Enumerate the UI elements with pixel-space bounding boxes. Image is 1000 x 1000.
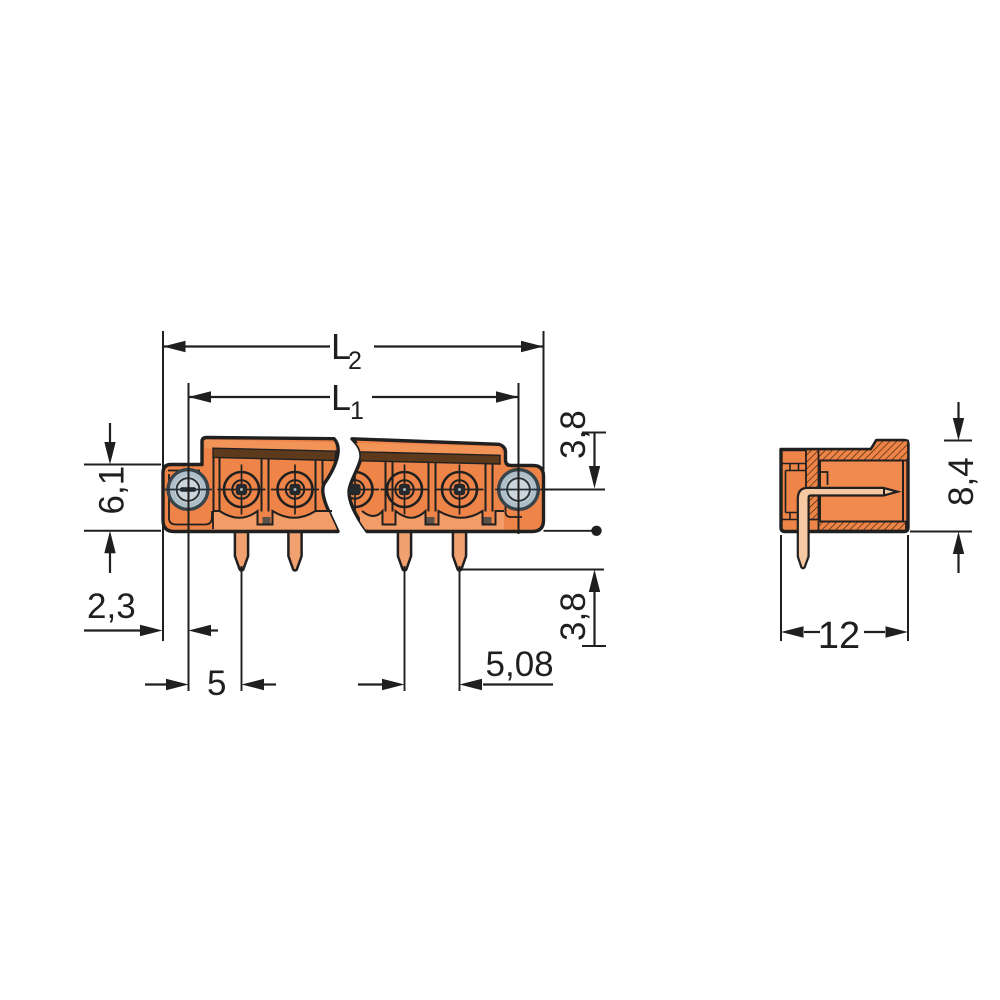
svg-text:1: 1 [350, 397, 364, 425]
svg-text:12: 12 [818, 615, 860, 657]
svg-text:L: L [331, 377, 351, 418]
svg-text:3,8: 3,8 [554, 592, 593, 641]
svg-text:6,1: 6,1 [93, 466, 132, 515]
svg-text:8,4: 8,4 [942, 457, 981, 506]
svg-text:2: 2 [348, 347, 362, 375]
svg-text:5,08: 5,08 [486, 645, 554, 684]
svg-text:5: 5 [207, 664, 226, 703]
svg-text:2,3: 2,3 [87, 587, 136, 626]
svg-text:3,8: 3,8 [554, 410, 593, 459]
